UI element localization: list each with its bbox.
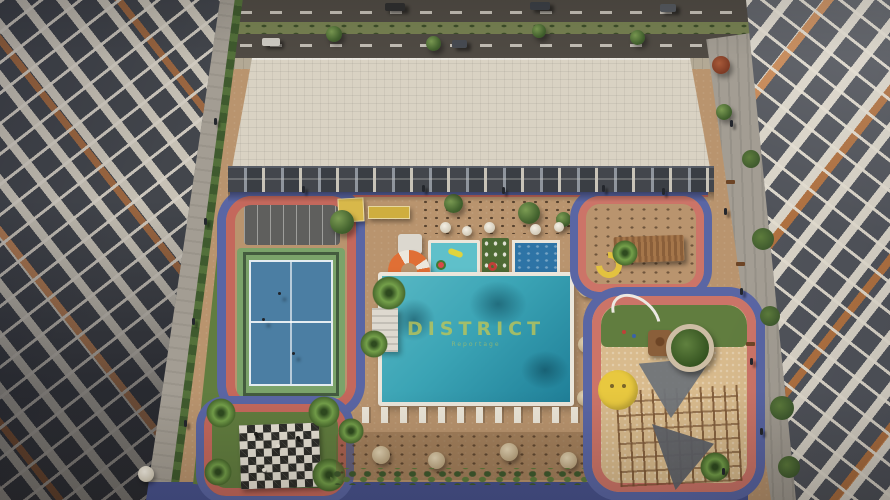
palm-tree <box>700 452 730 482</box>
car <box>385 3 405 11</box>
smiley-ground-art <box>598 370 638 410</box>
palm-tree <box>372 276 406 310</box>
pedestrian <box>214 118 217 125</box>
umbrella <box>500 443 518 461</box>
tree-planter <box>666 324 714 372</box>
pool-watermark: DISTRICT Reportage <box>378 318 574 348</box>
umbrella <box>440 222 451 233</box>
tree <box>716 104 732 120</box>
umbrella <box>372 446 390 464</box>
aerial-render: DISTRICT Reportage <box>0 0 890 500</box>
pedestrian <box>730 120 733 127</box>
umbrella <box>462 226 472 236</box>
umbrella <box>484 222 495 233</box>
pedestrian <box>662 188 665 195</box>
street-tree <box>426 36 441 51</box>
pedestrian <box>184 420 187 427</box>
building-shadow <box>228 192 714 202</box>
pedestrian <box>422 185 425 192</box>
planter-bush <box>760 306 780 326</box>
watermark-subtitle: Reportage <box>378 341 574 348</box>
tree <box>330 210 354 234</box>
chess-piece <box>262 468 266 472</box>
smiley-eye <box>622 384 626 388</box>
planter-bush <box>770 396 794 420</box>
red-ring-float <box>488 262 497 271</box>
child <box>632 334 636 338</box>
watermark-title: DISTRICT <box>378 318 574 340</box>
palm-tree <box>204 458 232 486</box>
planter-bush <box>778 456 800 478</box>
pedestrian <box>204 218 207 225</box>
palm-tree <box>360 330 388 358</box>
bench <box>736 262 745 266</box>
plunge-pool <box>512 240 560 276</box>
watermelon-float <box>436 260 446 270</box>
palm-tree <box>338 418 364 444</box>
pedestrian <box>302 186 305 193</box>
chess-piece <box>296 436 300 440</box>
street-tree <box>532 24 546 38</box>
bench <box>746 342 755 346</box>
umbrella <box>428 452 445 469</box>
umbrella <box>530 224 541 235</box>
pedestrian <box>750 358 753 365</box>
pedestrian <box>602 185 605 192</box>
pedestrian <box>760 428 763 435</box>
red-tree <box>712 56 730 74</box>
street-tree <box>630 30 645 45</box>
umbrella <box>138 466 154 482</box>
car <box>530 2 550 10</box>
child <box>622 330 626 334</box>
chess-piece <box>254 432 258 436</box>
water-shadow <box>520 350 570 390</box>
car <box>452 40 467 48</box>
planter-bush <box>742 150 760 168</box>
giant-chessboard <box>239 423 321 490</box>
umbrella <box>577 390 593 406</box>
chess-piece <box>276 444 280 448</box>
pedestrian <box>740 288 743 295</box>
pedestrian <box>502 187 505 194</box>
street-tree <box>326 26 342 42</box>
palm-tree <box>308 396 340 428</box>
building-top-roof <box>232 58 710 168</box>
pedestrian <box>724 208 727 215</box>
cabana <box>368 206 410 219</box>
pedestrian <box>192 318 195 325</box>
umbrella <box>554 222 564 232</box>
smiley-eye <box>610 384 614 388</box>
palm-tree <box>612 240 638 266</box>
building-top-facade <box>228 166 714 192</box>
palm-tree <box>206 398 236 428</box>
car <box>660 4 676 12</box>
umbrella <box>560 452 577 469</box>
tree <box>518 202 540 224</box>
planter-bush <box>752 228 774 250</box>
car <box>262 38 280 46</box>
bench <box>726 180 735 184</box>
pedestrian <box>722 468 725 475</box>
kids-pool <box>428 240 480 276</box>
